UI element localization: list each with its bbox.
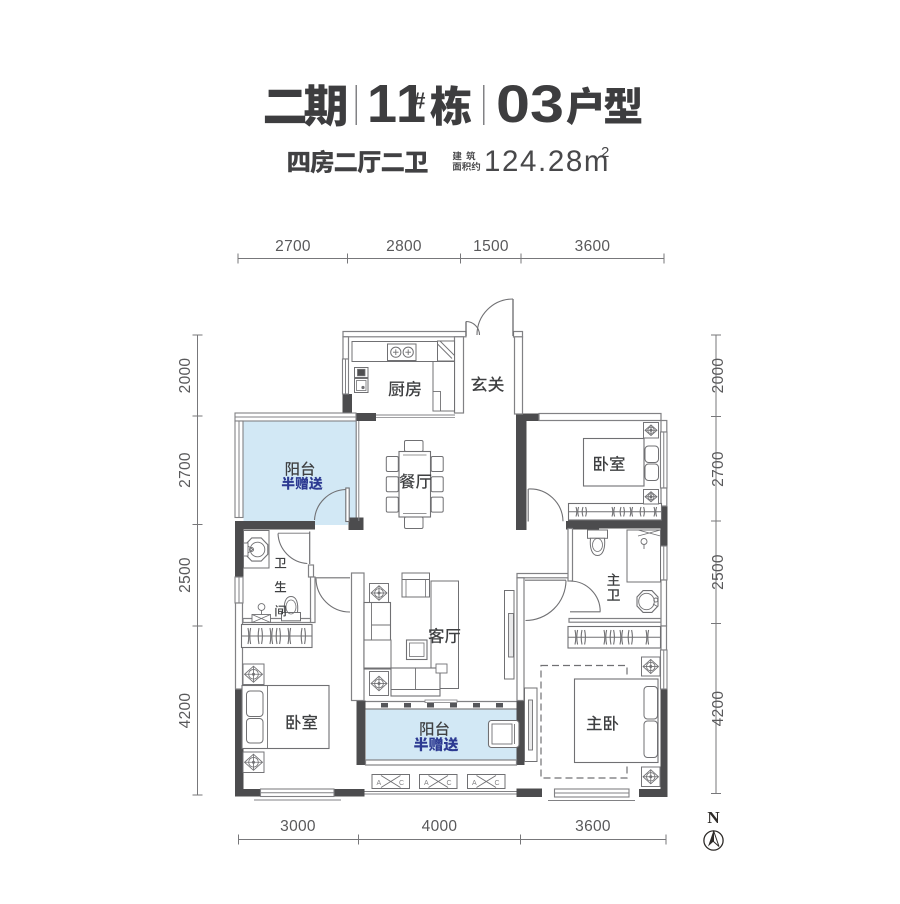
svg-text:2000: 2000 [177, 358, 194, 394]
svg-text:C: C [447, 780, 452, 787]
svg-text:3000: 3000 [280, 818, 316, 835]
svg-text:03: 03 [496, 75, 564, 134]
svg-text:2: 2 [601, 144, 609, 161]
svg-text:A: A [424, 780, 429, 787]
svg-text:C: C [399, 780, 404, 787]
svg-text:2800: 2800 [386, 238, 422, 255]
svg-text:2700: 2700 [275, 238, 311, 255]
svg-text:A: A [377, 780, 382, 787]
svg-text:2000: 2000 [710, 358, 727, 394]
svg-text:4000: 4000 [422, 818, 458, 835]
svg-text:2700: 2700 [710, 451, 727, 487]
svg-text:A: A [472, 780, 477, 787]
svg-text:C: C [495, 780, 500, 787]
svg-text:2500: 2500 [177, 557, 194, 593]
svg-text:3600: 3600 [575, 238, 611, 255]
svg-text:4200: 4200 [177, 693, 194, 729]
svg-text:2500: 2500 [710, 554, 727, 590]
svg-text:3600: 3600 [575, 818, 611, 835]
svg-text:#: # [413, 88, 426, 114]
svg-text:124.28m: 124.28m [484, 145, 610, 178]
svg-text:1500: 1500 [473, 238, 509, 255]
svg-text:2700: 2700 [177, 452, 194, 488]
svg-text:N: N [707, 808, 720, 827]
svg-text:4200: 4200 [710, 691, 727, 727]
